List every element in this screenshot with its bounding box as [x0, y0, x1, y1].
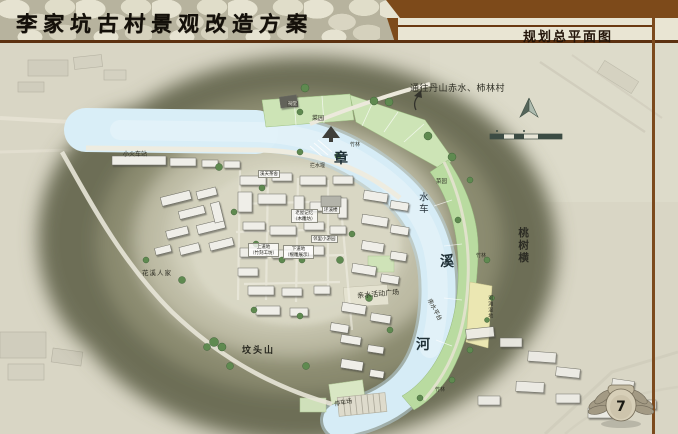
map-label-river-char-1: 章 — [334, 151, 348, 169]
map-label-train-station: 小火车站 — [123, 152, 147, 160]
map-label-garden-north: 菜园 — [312, 116, 324, 124]
map-label-garden-east: 菜园 — [436, 179, 447, 186]
presentation-slide: 通往丹山赤水、柿林村 小火车站 菜园 竹林 拦水堰 溪天茶舍 章 菜园 水车 桃… — [0, 0, 678, 434]
map-label-lower-court: 下道地 （根雕展示） — [283, 245, 314, 259]
map-label-bamboo-south: 竹林 — [435, 387, 445, 393]
map-label-huanxi-building: 环溪楼 — [322, 206, 340, 214]
map-label-parking: 停车场 — [334, 399, 353, 410]
right-border-line — [652, 17, 655, 434]
map-label-pocket-park: 邻里小游园 — [311, 235, 338, 243]
map-label-upper-court: 上道地 （竹刻工坊） — [248, 243, 279, 257]
map-label-weir: 拦水堰 — [310, 163, 325, 169]
map-label-waterfront-plaza: 亲水活动广场 — [357, 289, 400, 301]
map-label-waterfront-platform: 亲水平台 — [424, 298, 442, 323]
map-label-ancestral-hall: 祠堂 — [287, 101, 298, 107]
map-label-fentou-hill: 坟头山 — [242, 345, 275, 356]
map-label-teahouse: 溪天茶舍 — [258, 170, 280, 178]
map-label-route-note: 通往丹山赤水、柿林村 — [410, 83, 505, 94]
map-label-waterwheel: 水车 — [416, 192, 428, 215]
map-label-old-house-memory: 老屋记忆 （木雕坊） — [291, 209, 318, 223]
map-label-river-char-3: 河 — [416, 337, 430, 355]
winged-stone-emblem: 7 — [586, 377, 656, 431]
map-label-riverbank-wetland: 河滩湿地 — [487, 295, 493, 319]
emblem-graphic: 7 — [586, 377, 656, 431]
page-number: 7 — [616, 399, 626, 415]
map-label-huaxi-homes: 花溪人家 — [142, 270, 172, 278]
map-label-river-char-2: 溪 — [440, 254, 454, 272]
map-label-bamboo-north: 竹林 — [350, 142, 360, 148]
map-label-peach-ridge: 桃树横 — [516, 227, 529, 265]
map-label-bamboo-east: 竹林 — [476, 253, 486, 259]
map-labels: 通往丹山赤水、柿林村 小火车站 菜园 竹林 拦水堰 溪天茶舍 章 菜园 水车 桃… — [0, 0, 678, 434]
